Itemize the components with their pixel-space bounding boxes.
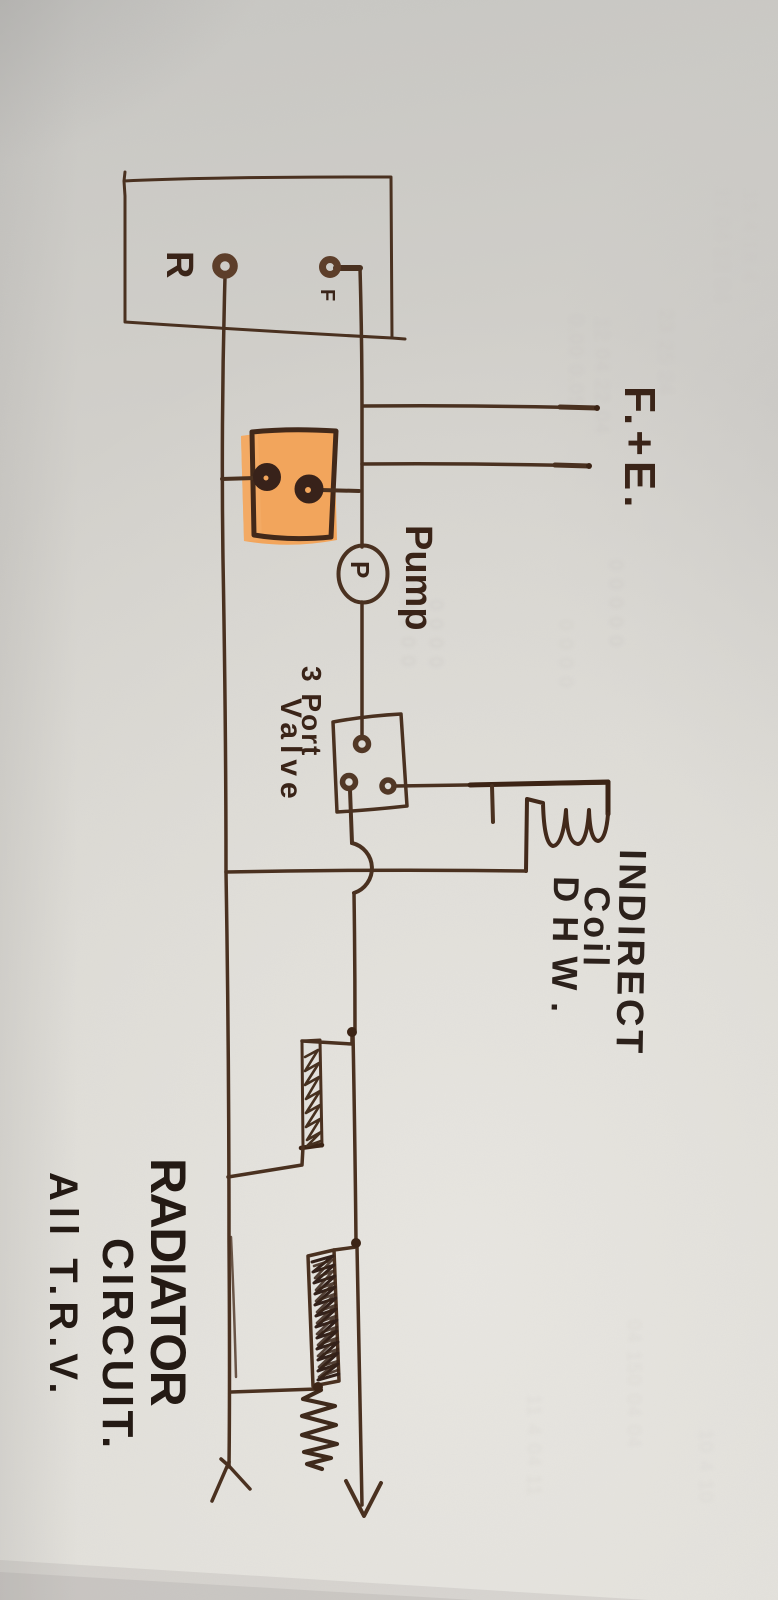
svg-text:11 04 12 04: 11 04 12 04 xyxy=(712,188,732,304)
svg-text:Valve: Valve xyxy=(274,698,307,805)
svg-text:11 4 04 11: 11 4 04 11 xyxy=(524,1395,544,1497)
svg-text:All T.R.V.: All T.R.V. xyxy=(41,1172,85,1399)
svg-text:Pump: Pump xyxy=(397,525,439,631)
svg-text:DHW.: DHW. xyxy=(543,876,587,1027)
svg-text:0 0 0 0: 0 0 0 0 xyxy=(556,620,576,689)
svg-text:F.+E.: F.+E. xyxy=(615,386,664,513)
svg-text:10 4 10: 10 4 10 xyxy=(696,1430,716,1504)
svg-text:R: R xyxy=(158,251,200,278)
svg-text:0 0 0 0 0: 0 0 0 0 0 xyxy=(606,560,626,648)
svg-text:CIRCUIT.: CIRCUIT. xyxy=(93,1238,142,1452)
svg-text:23 25 24: 23 25 24 xyxy=(656,310,676,396)
svg-text:0.00 0.05: 0.00 0.05 xyxy=(566,315,586,408)
svg-text:15 4 18 4: 15 4 18 4 xyxy=(740,190,760,283)
svg-text:F: F xyxy=(316,289,338,301)
svg-text:P: P xyxy=(345,561,375,578)
svg-text:04 150 04 04: 04 150 04 04 xyxy=(624,1320,644,1449)
svg-text:RADIATOR: RADIATOR xyxy=(140,1158,196,1407)
svg-text:12 04 22 04: 12 04 22 04 xyxy=(592,318,612,435)
